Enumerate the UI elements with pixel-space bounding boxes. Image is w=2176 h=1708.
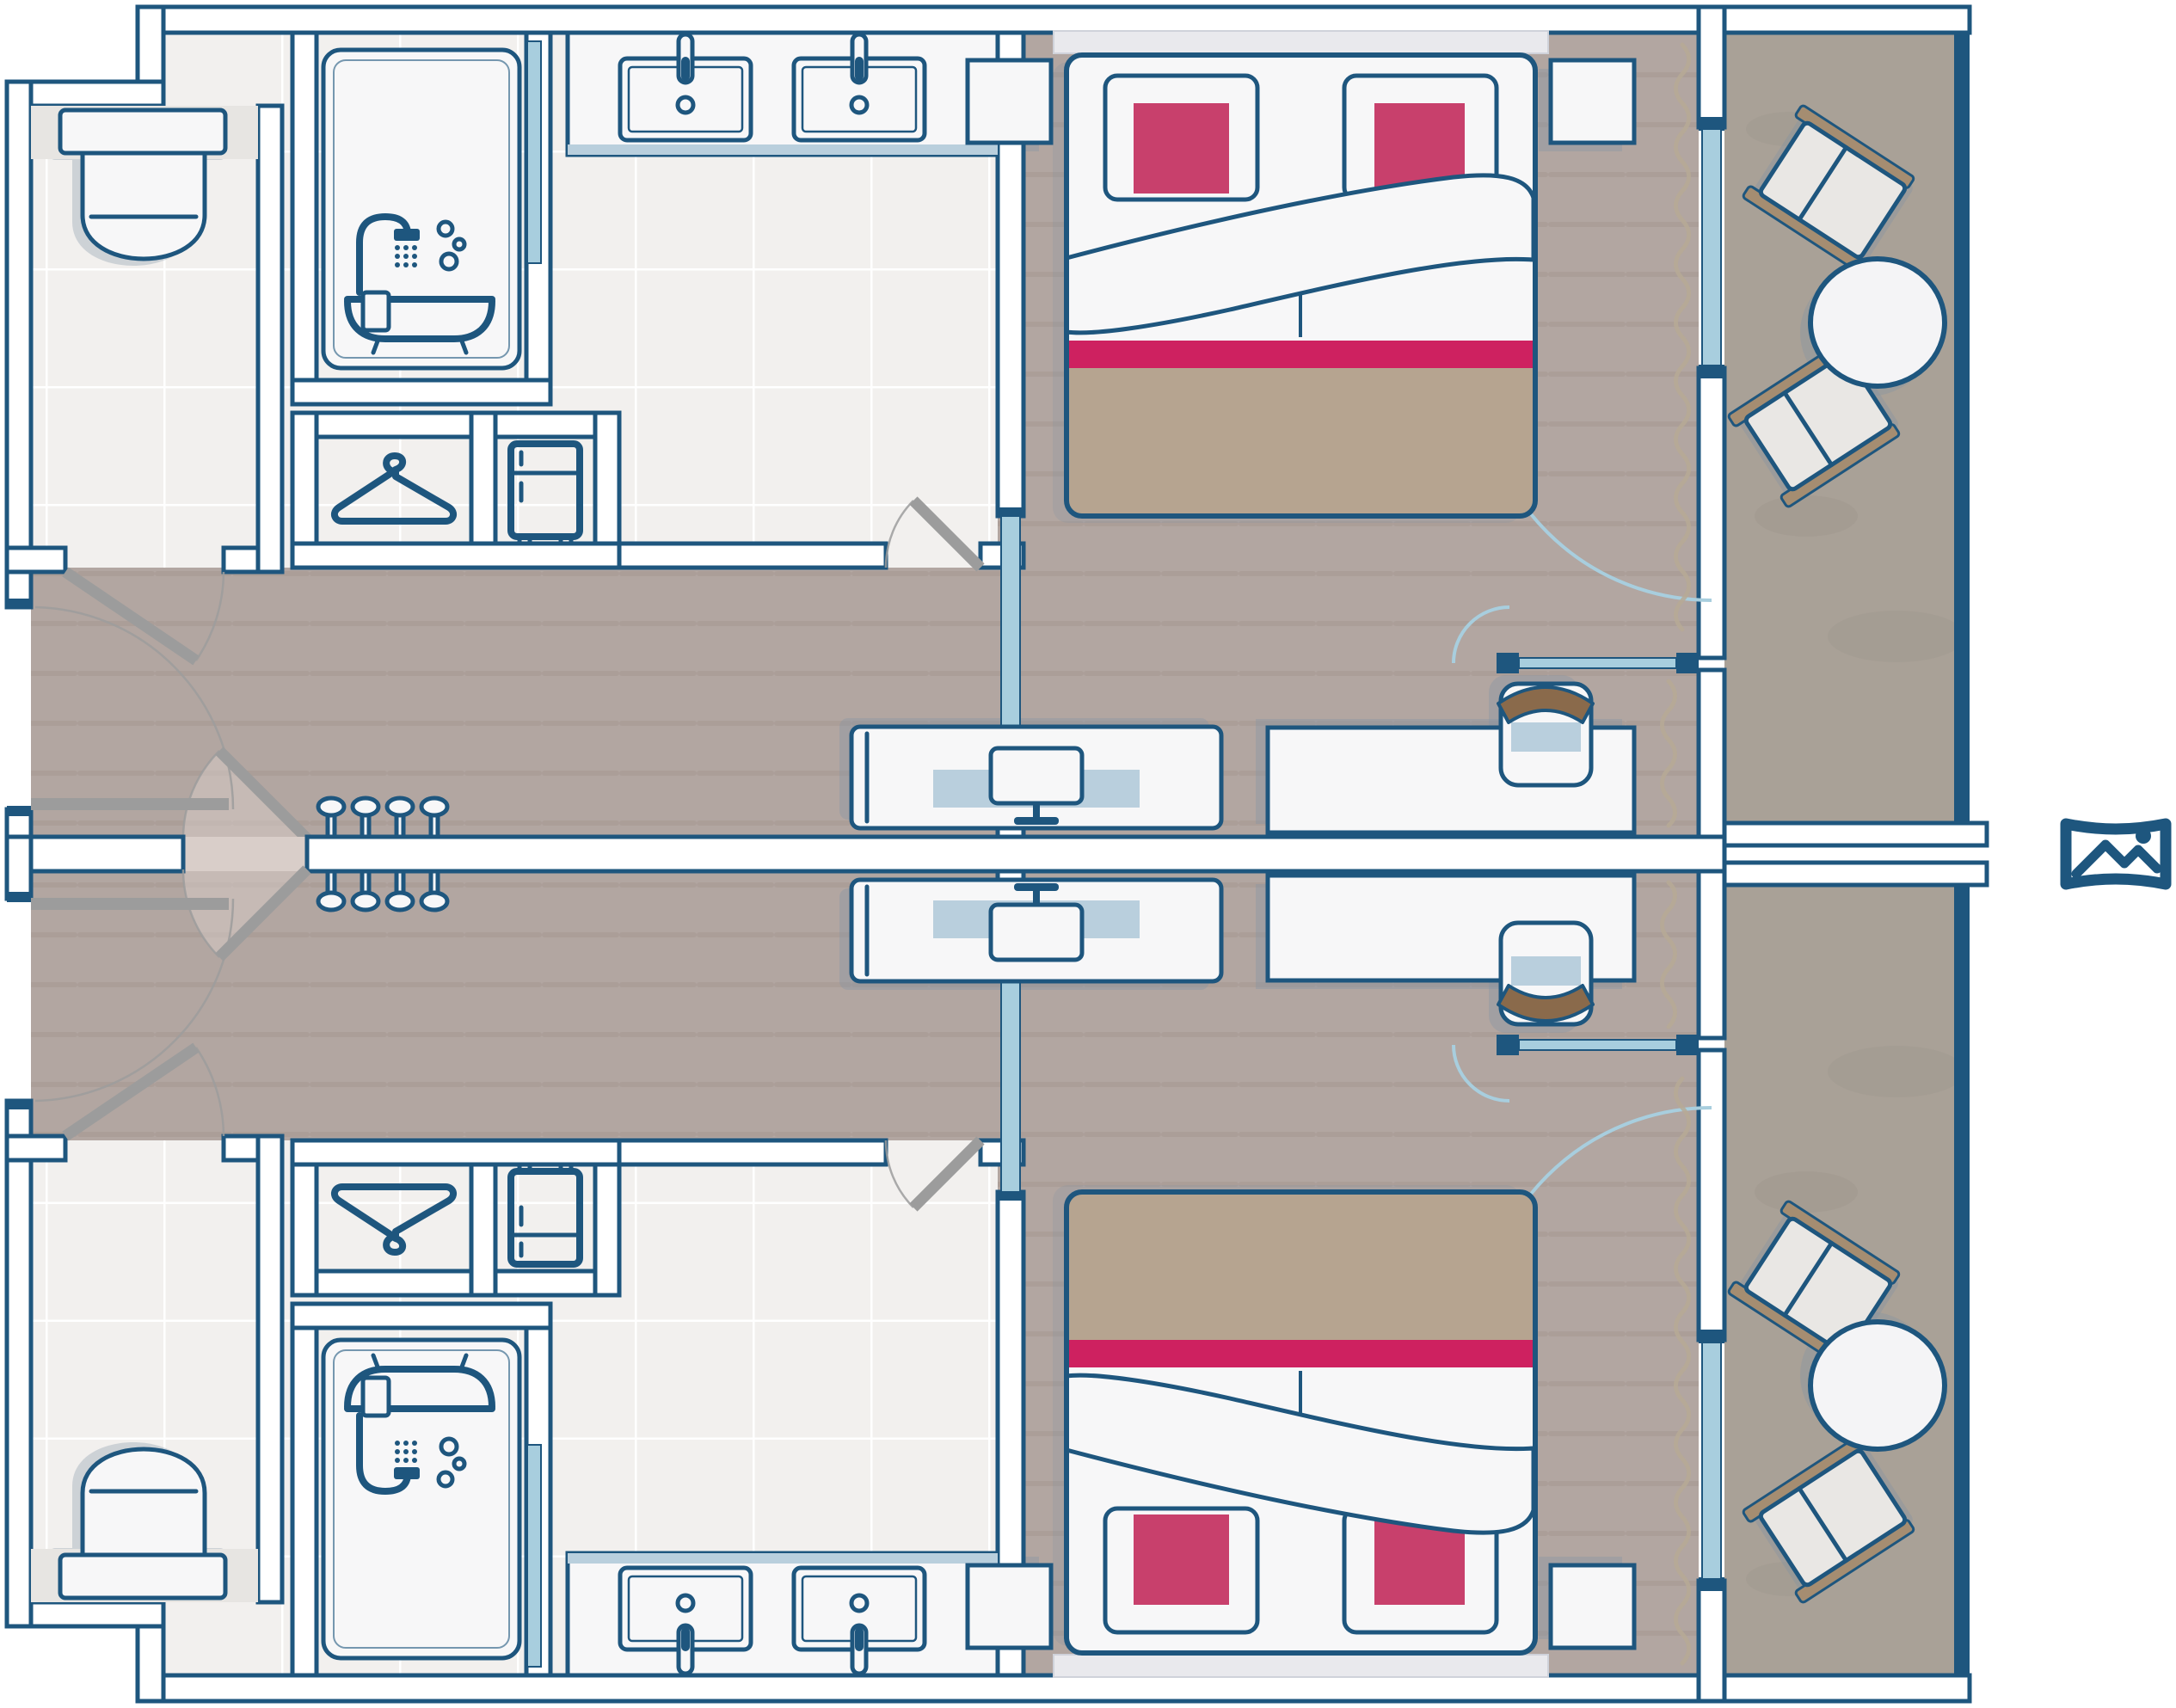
- panorama-view-icon: [2066, 824, 2166, 884]
- room-unit-a: [7, 7, 1987, 871]
- room-unit-b: [7, 837, 1987, 1701]
- floor-plan-canvas: [0, 0, 2176, 1708]
